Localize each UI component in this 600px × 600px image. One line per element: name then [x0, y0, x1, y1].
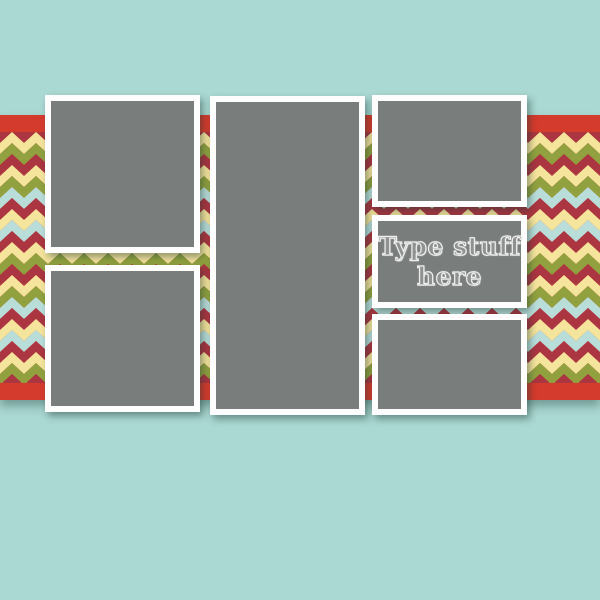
- template-canvas: Type stuff here: [0, 0, 600, 600]
- photo-placeholder-left-top[interactable]: [45, 95, 200, 253]
- photo-placeholder-right-top[interactable]: [372, 95, 527, 207]
- photo-placeholder-left-bottom[interactable]: [45, 265, 200, 412]
- text-placeholder-box[interactable]: Type stuff here: [372, 215, 527, 308]
- photo-placeholder-right-bottom[interactable]: [372, 314, 527, 415]
- text-placeholder-line2: here: [417, 262, 482, 291]
- text-placeholder-label: Type stuff here: [378, 232, 521, 292]
- photo-placeholder-middle[interactable]: [210, 96, 365, 415]
- text-placeholder-line1: Type stuff: [378, 232, 521, 261]
